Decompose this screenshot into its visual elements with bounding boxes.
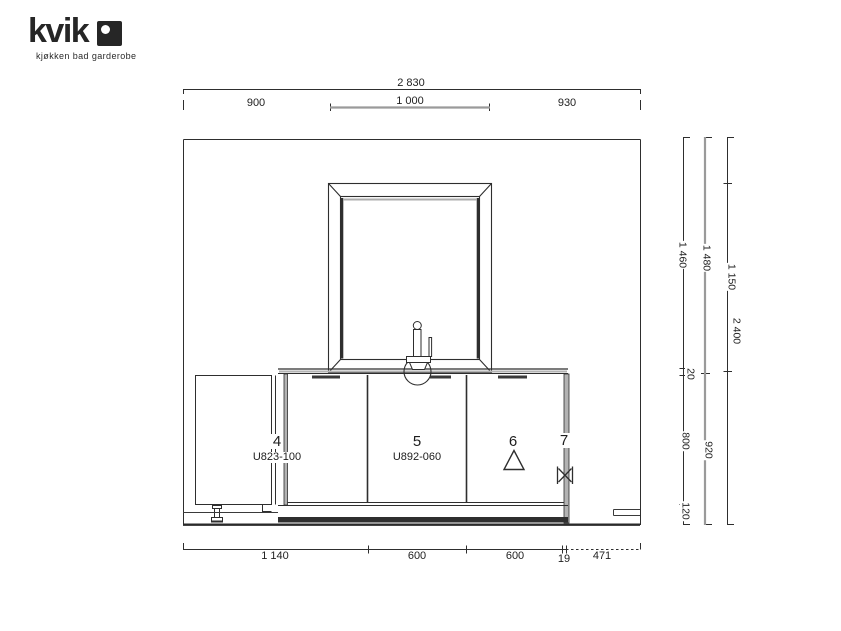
- triangle-icon: [504, 451, 524, 470]
- vanity-outline: [278, 369, 569, 523]
- dim-right-1460: 1 460: [677, 241, 688, 269]
- item-5-code: U892-060: [392, 452, 442, 463]
- mirror: [329, 184, 492, 373]
- dim-right-120: 120: [680, 501, 691, 521]
- dim-width-right: 930: [558, 98, 576, 109]
- dim-right-20: 20: [685, 367, 696, 381]
- dim-right-1480: 1 480: [701, 244, 712, 272]
- dim-bottom-600b: 600: [506, 551, 524, 562]
- skirting-lines: [183, 510, 640, 516]
- dim-bottom-600a: 600: [408, 551, 426, 562]
- dim-bottom-471: 471: [593, 551, 611, 562]
- dim-right-2400: 2 400: [731, 317, 742, 345]
- dim-width-left: 900: [247, 98, 265, 109]
- plinth-bar: [278, 517, 568, 523]
- drawing-page: kvik kjøkken bad garderobe: [0, 0, 841, 631]
- dim-bottom-1140: 1 140: [261, 551, 289, 562]
- dim-width-mirror: 1 000: [396, 96, 424, 107]
- item-4-code: U823-100: [252, 452, 302, 463]
- dim-right-800: 800: [680, 431, 691, 451]
- dim-bottom-19: 19: [558, 554, 570, 565]
- faucet-icon: [407, 322, 432, 370]
- item-6-number: 6: [507, 434, 519, 449]
- right-dimension-lines: [680, 138, 735, 525]
- item-5-number: 5: [411, 434, 423, 449]
- item-4-number: 4: [271, 434, 283, 449]
- cabinet-4-outline: [196, 376, 276, 522]
- dim-right-920: 920: [703, 440, 714, 460]
- dim-total-width: 2 830: [397, 78, 425, 89]
- item-7-number: 7: [558, 433, 570, 448]
- dim-right-1150: 1 150: [726, 263, 737, 291]
